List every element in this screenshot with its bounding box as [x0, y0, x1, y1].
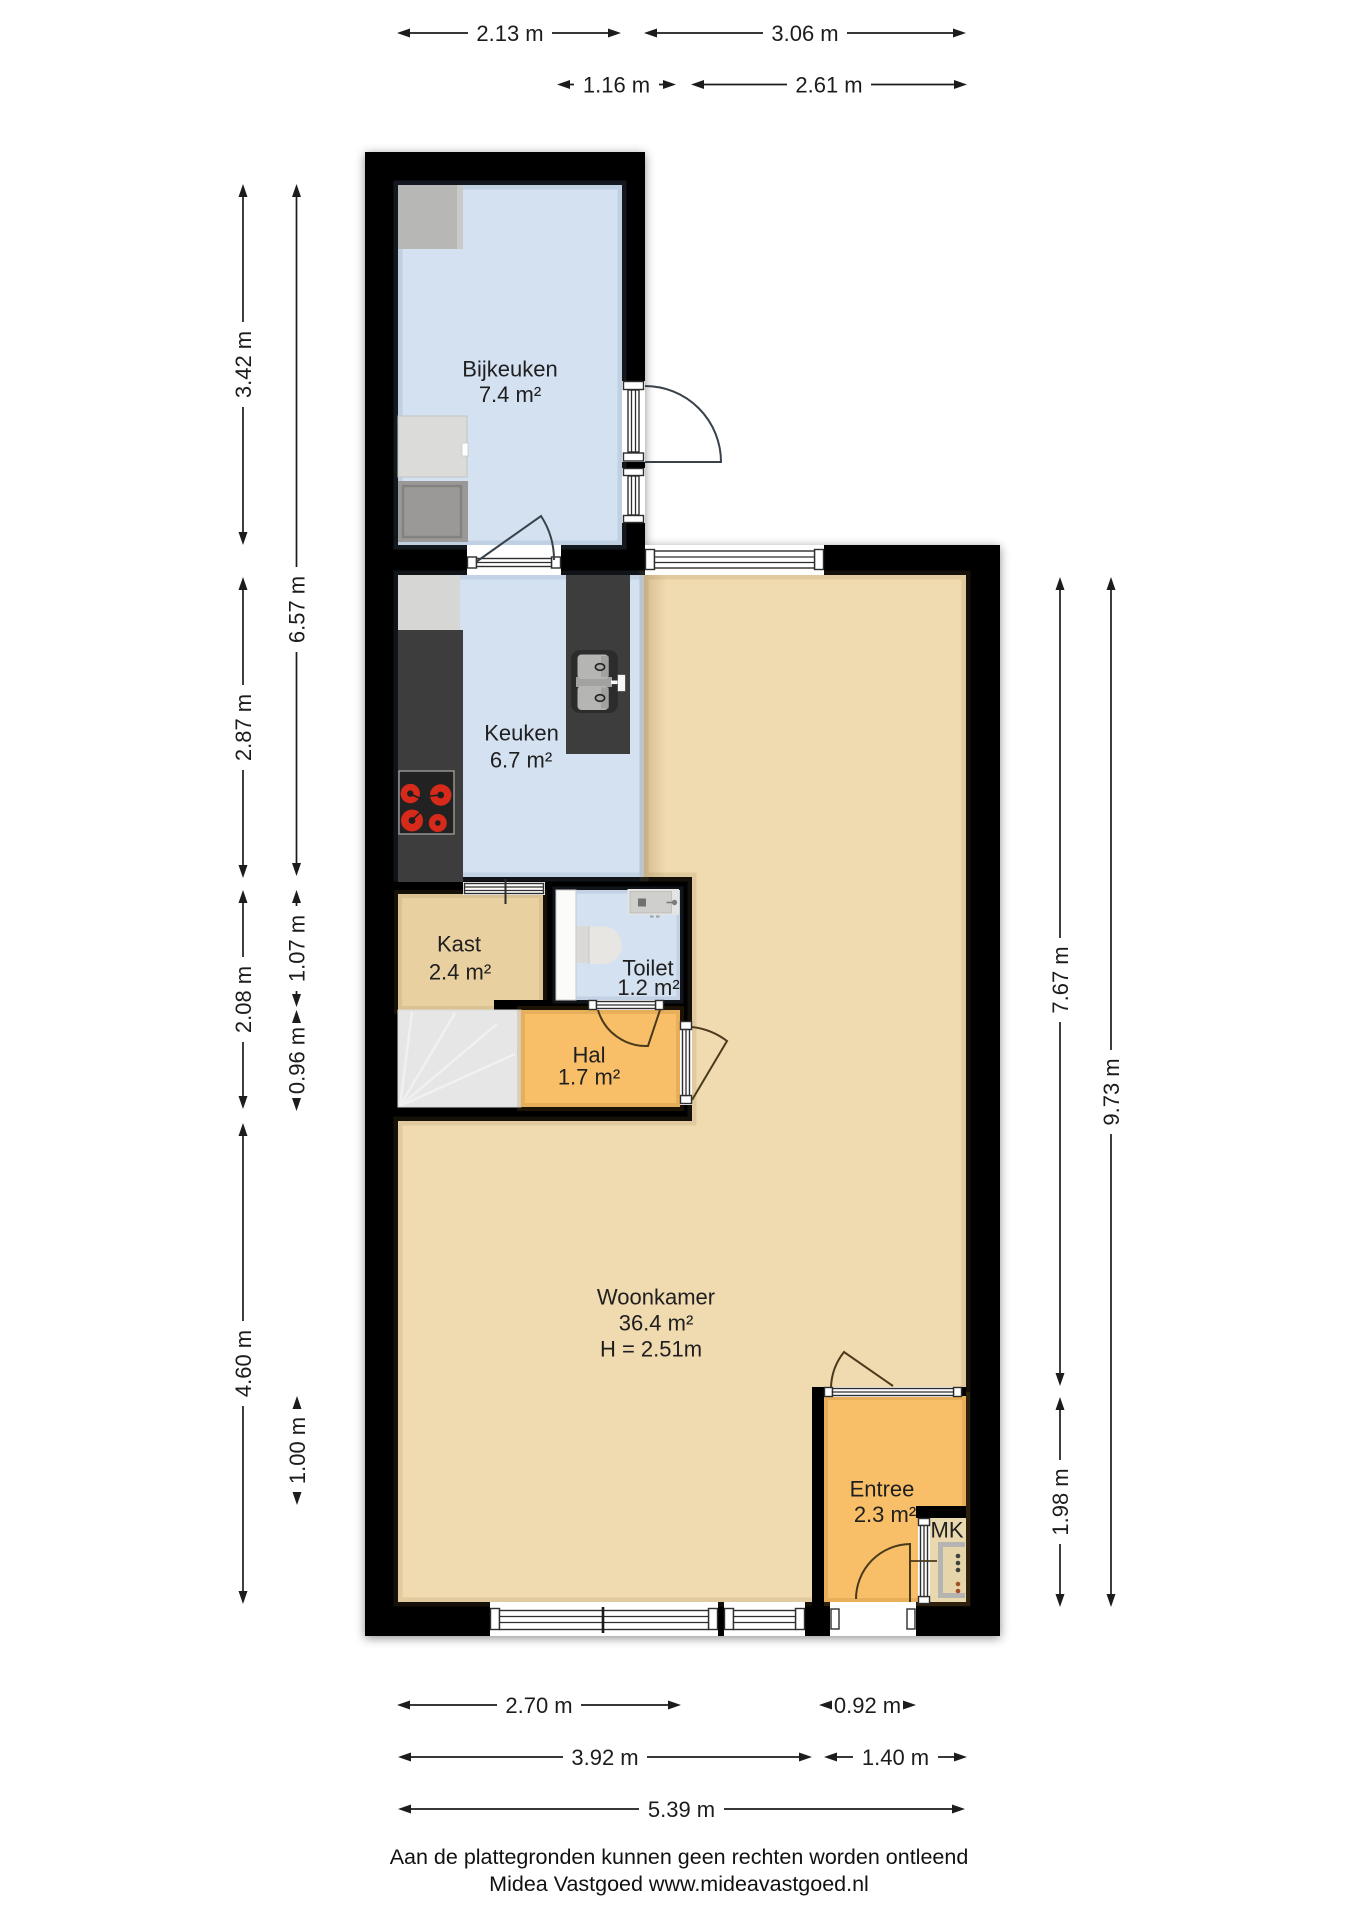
svg-text:Kast: Kast	[437, 932, 481, 957]
svg-text:Bijkeuken: Bijkeuken	[462, 357, 557, 382]
svg-text:Midea Vastgoed www.mideavastgo: Midea Vastgoed www.mideavastgoed.nl	[489, 1872, 869, 1896]
svg-text:9.73 m: 9.73 m	[1099, 1058, 1124, 1125]
svg-text:3.06 m: 3.06 m	[771, 21, 838, 46]
svg-text:7.67 m: 7.67 m	[1048, 946, 1073, 1013]
svg-text:0.92 m: 0.92 m	[834, 1693, 901, 1718]
svg-text:4.60 m: 4.60 m	[231, 1330, 256, 1397]
svg-text:5.39 m: 5.39 m	[648, 1797, 715, 1822]
svg-text:1.2 m²: 1.2 m²	[617, 975, 679, 1000]
svg-text:2.4 m²: 2.4 m²	[429, 960, 491, 985]
svg-text:2.61 m: 2.61 m	[795, 73, 862, 98]
svg-text:1.07 m: 1.07 m	[285, 915, 310, 982]
svg-text:H = 2.51m: H = 2.51m	[600, 1337, 702, 1362]
svg-text:Entree: Entree	[850, 1477, 915, 1502]
svg-text:6.7 m²: 6.7 m²	[490, 748, 552, 773]
svg-text:Woonkamer: Woonkamer	[597, 1285, 715, 1310]
svg-text:1.16 m: 1.16 m	[583, 73, 650, 98]
svg-text:1.40 m: 1.40 m	[862, 1745, 929, 1770]
svg-text:1.98 m: 1.98 m	[1048, 1468, 1073, 1535]
svg-text:MK: MK	[931, 1518, 964, 1543]
svg-text:3.42 m: 3.42 m	[231, 331, 256, 398]
svg-text:7.4 m²: 7.4 m²	[479, 382, 541, 407]
svg-text:2.13 m: 2.13 m	[476, 21, 543, 46]
svg-text:2.70 m: 2.70 m	[505, 1693, 572, 1718]
svg-text:3.92 m: 3.92 m	[571, 1745, 638, 1770]
svg-text:Aan de plattegronden kunnen ge: Aan de plattegronden kunnen geen rechten…	[390, 1845, 969, 1869]
svg-text:6.57 m: 6.57 m	[285, 576, 310, 643]
svg-text:36.4 m²: 36.4 m²	[619, 1311, 694, 1336]
svg-text:2.3 m²: 2.3 m²	[854, 1502, 916, 1527]
svg-text:1.7 m²: 1.7 m²	[558, 1065, 620, 1090]
svg-text:0.96 m: 0.96 m	[285, 1027, 310, 1094]
svg-text:Keuken: Keuken	[484, 721, 559, 746]
svg-text:1.00 m: 1.00 m	[285, 1417, 310, 1484]
svg-text:2.87 m: 2.87 m	[231, 694, 256, 761]
svg-text:2.08 m: 2.08 m	[231, 966, 256, 1033]
